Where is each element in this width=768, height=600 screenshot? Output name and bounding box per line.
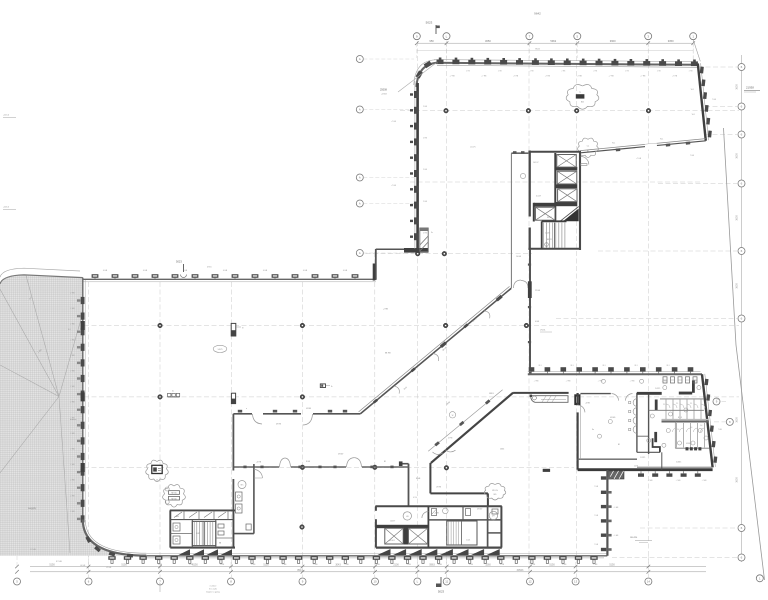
svg-text:B05: B05 [176,516,179,518]
svg-text:3600: 3600 [610,39,616,43]
svg-text:12: 12 [528,580,532,584]
svg-text:49 HB: 49 HB [276,424,282,426]
svg-text:A: A [359,108,361,112]
svg-text:A: A [359,176,361,180]
svg-text:5150: 5150 [192,563,198,566]
svg-text:B8121: B8121 [547,239,552,241]
svg-text:4 HB: 4 HB [143,270,148,272]
svg-text:988 B: 988 B [489,393,494,395]
svg-text:B1: B1 [618,444,620,446]
svg-text:+1903: +1903 [381,94,388,96]
svg-text:8B: 8B [219,543,221,545]
svg-text:B05: B05 [494,494,497,496]
svg-text:13: 13 [574,580,578,584]
svg-text:2100: 2100 [393,563,399,566]
svg-text:W-1: W-1 [691,89,694,91]
svg-text:2 HB: 2 HB [70,324,75,326]
svg-text:2.4975: 2.4975 [655,388,660,390]
svg-text:2 HB: 2 HB [70,480,75,482]
svg-text:W-1: W-1 [538,365,541,367]
svg-text:5962: 5962 [550,39,556,43]
svg-text:4 HB: 4 HB [343,270,348,272]
svg-text:5150: 5150 [121,563,127,566]
svg-text:+7 HB: +7 HB [577,76,583,78]
svg-text:number: number [210,586,217,588]
svg-text:2 HB: 2 HB [70,495,75,497]
svg-text:2 HB: 2 HB [70,386,75,388]
svg-text:a: a [246,408,247,410]
svg-text:+7 HB: +7 HB [545,76,551,78]
svg-text:1.021: 1.021 [466,540,470,542]
svg-text:3600: 3600 [736,153,739,159]
svg-text:W-1: W-1 [692,114,695,116]
svg-text:2.1: 2.1 [690,403,692,405]
svg-text:1.4: 1.4 [677,429,679,431]
svg-text:3050: 3050 [668,39,674,43]
svg-text:9642: 9642 [534,12,541,16]
svg-text:3600: 3600 [736,417,739,423]
svg-text:49 B05: 49 B05 [610,417,615,419]
svg-text:3600: 3600 [736,84,739,90]
svg-text:L9 HB: L9 HB [436,487,442,489]
svg-text:950: 950 [429,39,434,43]
svg-text:+7 HB: +7 HB [391,185,397,187]
svg-text:26: 26 [156,480,158,482]
svg-text:+7 HB: +7 HB [513,76,519,78]
svg-text:2 HB: 2 HB [70,293,75,295]
svg-text:1/7 HB: 1/7 HB [30,549,37,551]
svg-text:4 HB: 4 HB [263,270,268,272]
svg-text:L05: L05 [406,516,409,518]
svg-text:8/7 HB: 8/7 HB [56,561,63,563]
svg-text:8B HB: 8B HB [385,353,391,355]
svg-text:2 HB: 2 HB [70,402,75,404]
svg-text:4 HB: 4 HB [103,270,108,272]
svg-text:3043: 3043 [335,563,341,566]
svg-text:2 HB: 2 HB [70,449,75,451]
svg-text:+7 HB: +7 HB [608,76,614,78]
svg-text:2.4215: 2.4215 [545,233,550,235]
svg-text:104.97: 104.97 [390,521,395,523]
svg-text:2 HB: 2 HB [70,433,75,435]
svg-text:21938: 21938 [746,86,754,90]
svg-text:11: 11 [445,580,448,584]
svg-text:+7 HB: +7 HB [481,76,487,78]
svg-text:5023: 5023 [176,260,182,264]
svg-text:1.2075: 1.2075 [640,457,645,459]
svg-text:2 HB: 2 HB [70,464,75,466]
svg-text:5150: 5150 [49,563,55,566]
svg-text:+7 HB: +7 HB [449,76,455,78]
svg-text:5-1: 5-1 [587,146,590,148]
svg-text:0.5%: 0.5% [413,497,417,499]
svg-text:8 HB: 8 HB [416,478,421,480]
svg-text:+7 HB: +7 HB [636,158,642,160]
svg-text:2.027: 2.027 [196,533,200,535]
svg-text:+7 HB: +7 HB [672,76,678,78]
svg-text:W-1: W-1 [660,139,663,141]
svg-text:3050: 3050 [485,39,491,43]
svg-text:begins to going: begins to going [206,591,220,594]
svg-text:A: A [359,251,361,255]
svg-text:W-1: W-1 [602,365,605,367]
svg-text:+6 HB: +6 HB [256,462,262,464]
svg-text:LIFT: LIFT [492,516,495,518]
svg-text:M51.2k: M51.2k [492,490,498,492]
svg-text:2 HB: 2 HB [70,355,75,357]
svg-text:3600: 3600 [736,215,739,221]
svg-text:49 B07: 49 B07 [477,509,482,511]
svg-text:2 HB: 2 HB [70,371,75,373]
svg-text:8s: 8s [431,232,433,234]
svg-text:2.1: 2.1 [663,404,665,406]
svg-text:49 B07: 49 B07 [686,443,691,445]
svg-text:W-1: W-1 [634,365,637,367]
svg-text:1.4: 1.4 [690,427,692,429]
svg-text:49 MB: 49 MB [306,408,312,410]
svg-text:180.224: 180.224 [630,537,638,539]
svg-text:3600: 3600 [736,283,739,289]
svg-text:SB 01: SB 01 [547,217,552,219]
svg-text:2 HB: 2 HB [70,339,75,341]
svg-text:B 1.8: B 1.8 [678,417,682,419]
svg-text:25008: 25008 [380,89,388,92]
svg-text:+7 HB: +7 HB [640,76,646,78]
svg-text:5150: 5150 [263,563,269,566]
svg-text:6s: 6s [172,391,174,393]
svg-text:L2 HB: L2 HB [106,567,112,569]
svg-text:2 HB: 2 HB [70,511,75,513]
svg-text:8541: 8541 [297,569,303,572]
svg-text:5150: 5150 [549,563,555,566]
svg-text:3260: 3260 [485,563,491,566]
svg-text:14075: 14075 [218,349,223,351]
svg-text:NET.05: NET.05 [171,493,176,495]
svg-text:10: 10 [373,580,377,584]
svg-text:W-1: W-1 [666,365,669,367]
svg-text:5963: 5963 [429,563,435,566]
svg-text:1365: 1365 [500,449,504,451]
svg-text:the walls: the walls [209,588,217,591]
svg-text:fh: fh [331,386,332,388]
svg-text:14: 14 [647,580,651,584]
svg-text:wegghy: wegghy [28,507,37,510]
svg-text:4 HB: 4 HB [303,270,308,272]
svg-text:49 B07: 49 B07 [338,454,343,456]
svg-text:49 B01: 49 B01 [389,540,395,542]
svg-text:5.4815: 5.4815 [676,462,681,464]
svg-text:101.97: 101.97 [533,162,539,164]
svg-text:3600: 3600 [736,477,739,483]
svg-text:+115.0: +115.0 [3,115,10,117]
svg-text:1.4: 1.4 [700,425,702,427]
svg-text:LIV.DL: LIV.DL [540,330,546,332]
svg-text:30543: 30543 [517,569,524,572]
svg-text:12.79: 12.79 [634,465,638,467]
svg-text:L4 HB: L4 HB [80,565,86,567]
svg-text:8a: 8a [592,429,594,431]
svg-text:2.027: 2.027 [536,196,542,198]
svg-text:+116.5: +116.5 [3,207,10,209]
svg-text:W-1: W-1 [570,365,573,367]
svg-text:2 PM: 2 PM [448,438,453,440]
svg-text:A: A [359,57,361,61]
svg-text:B05: B05 [581,102,584,104]
svg-text:B1: B1 [587,151,589,153]
svg-text:9642: 9642 [535,49,541,51]
svg-text:22 HB: 22 HB [535,290,541,292]
svg-text:2 HB: 2 HB [70,417,75,419]
svg-text:NET.05: NET.05 [171,498,176,500]
svg-text:L1475: L1475 [470,147,476,149]
svg-text:B1: B1 [384,461,386,463]
svg-text:2.1: 2.1 [676,403,678,405]
svg-text:5023: 5023 [426,21,433,25]
svg-text:-2 HB: -2 HB [383,309,389,311]
svg-text:4 HB: 4 HB [223,270,228,272]
svg-text:W-1: W-1 [612,143,615,145]
svg-text:T1: T1 [579,92,581,94]
svg-text:5150: 5150 [609,563,615,566]
svg-text:10 HB: 10 HB [516,256,522,258]
svg-text:A: A [359,202,361,206]
svg-text:5023: 5023 [438,590,445,594]
svg-text:+7 HB: +7 HB [391,121,397,123]
svg-text:2 HB: 2 HB [70,308,75,310]
